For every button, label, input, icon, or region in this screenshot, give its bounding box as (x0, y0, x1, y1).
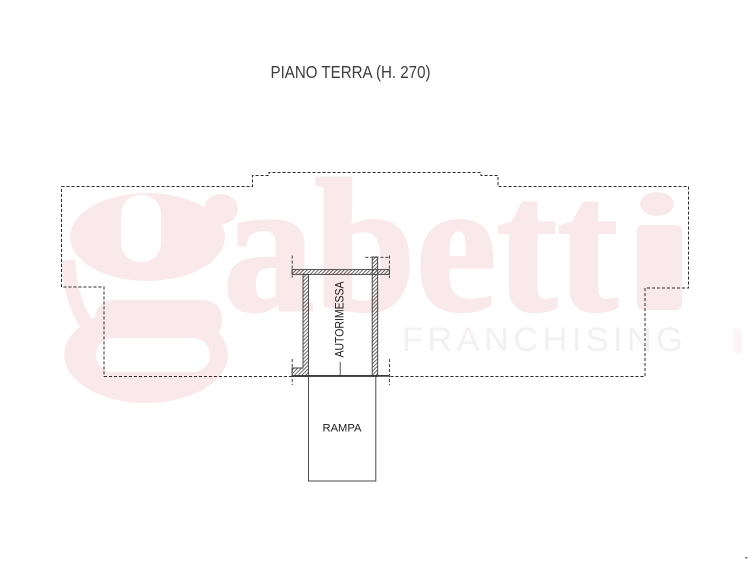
svg-text:FRANCHISING: FRANCHISING (402, 321, 683, 359)
svg-text:RAMPA: RAMPA (323, 423, 362, 435)
svg-text:PIANO TERRA (H. 270): PIANO TERRA (H. 270) (271, 62, 431, 82)
svg-text:AUTORIMESSA: AUTORIMESSA (333, 281, 347, 357)
